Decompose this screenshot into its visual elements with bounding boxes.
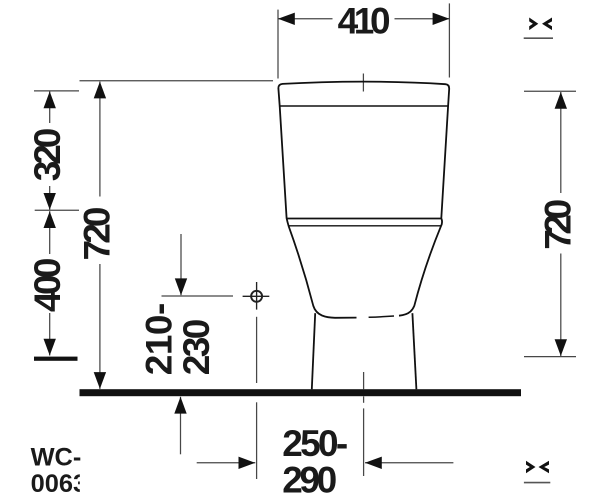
svg-text:WC-: WC- xyxy=(31,444,82,472)
svg-text:720: 720 xyxy=(77,207,118,261)
svg-text:720: 720 xyxy=(538,199,579,250)
svg-text:400: 400 xyxy=(27,258,68,313)
svg-text:410: 410 xyxy=(338,1,391,42)
svg-text:290: 290 xyxy=(282,460,337,500)
svg-text:210-: 210- xyxy=(138,303,179,376)
svg-text:320: 320 xyxy=(27,128,68,182)
svg-text:250-: 250- xyxy=(282,423,348,464)
svg-text:230: 230 xyxy=(176,319,217,376)
